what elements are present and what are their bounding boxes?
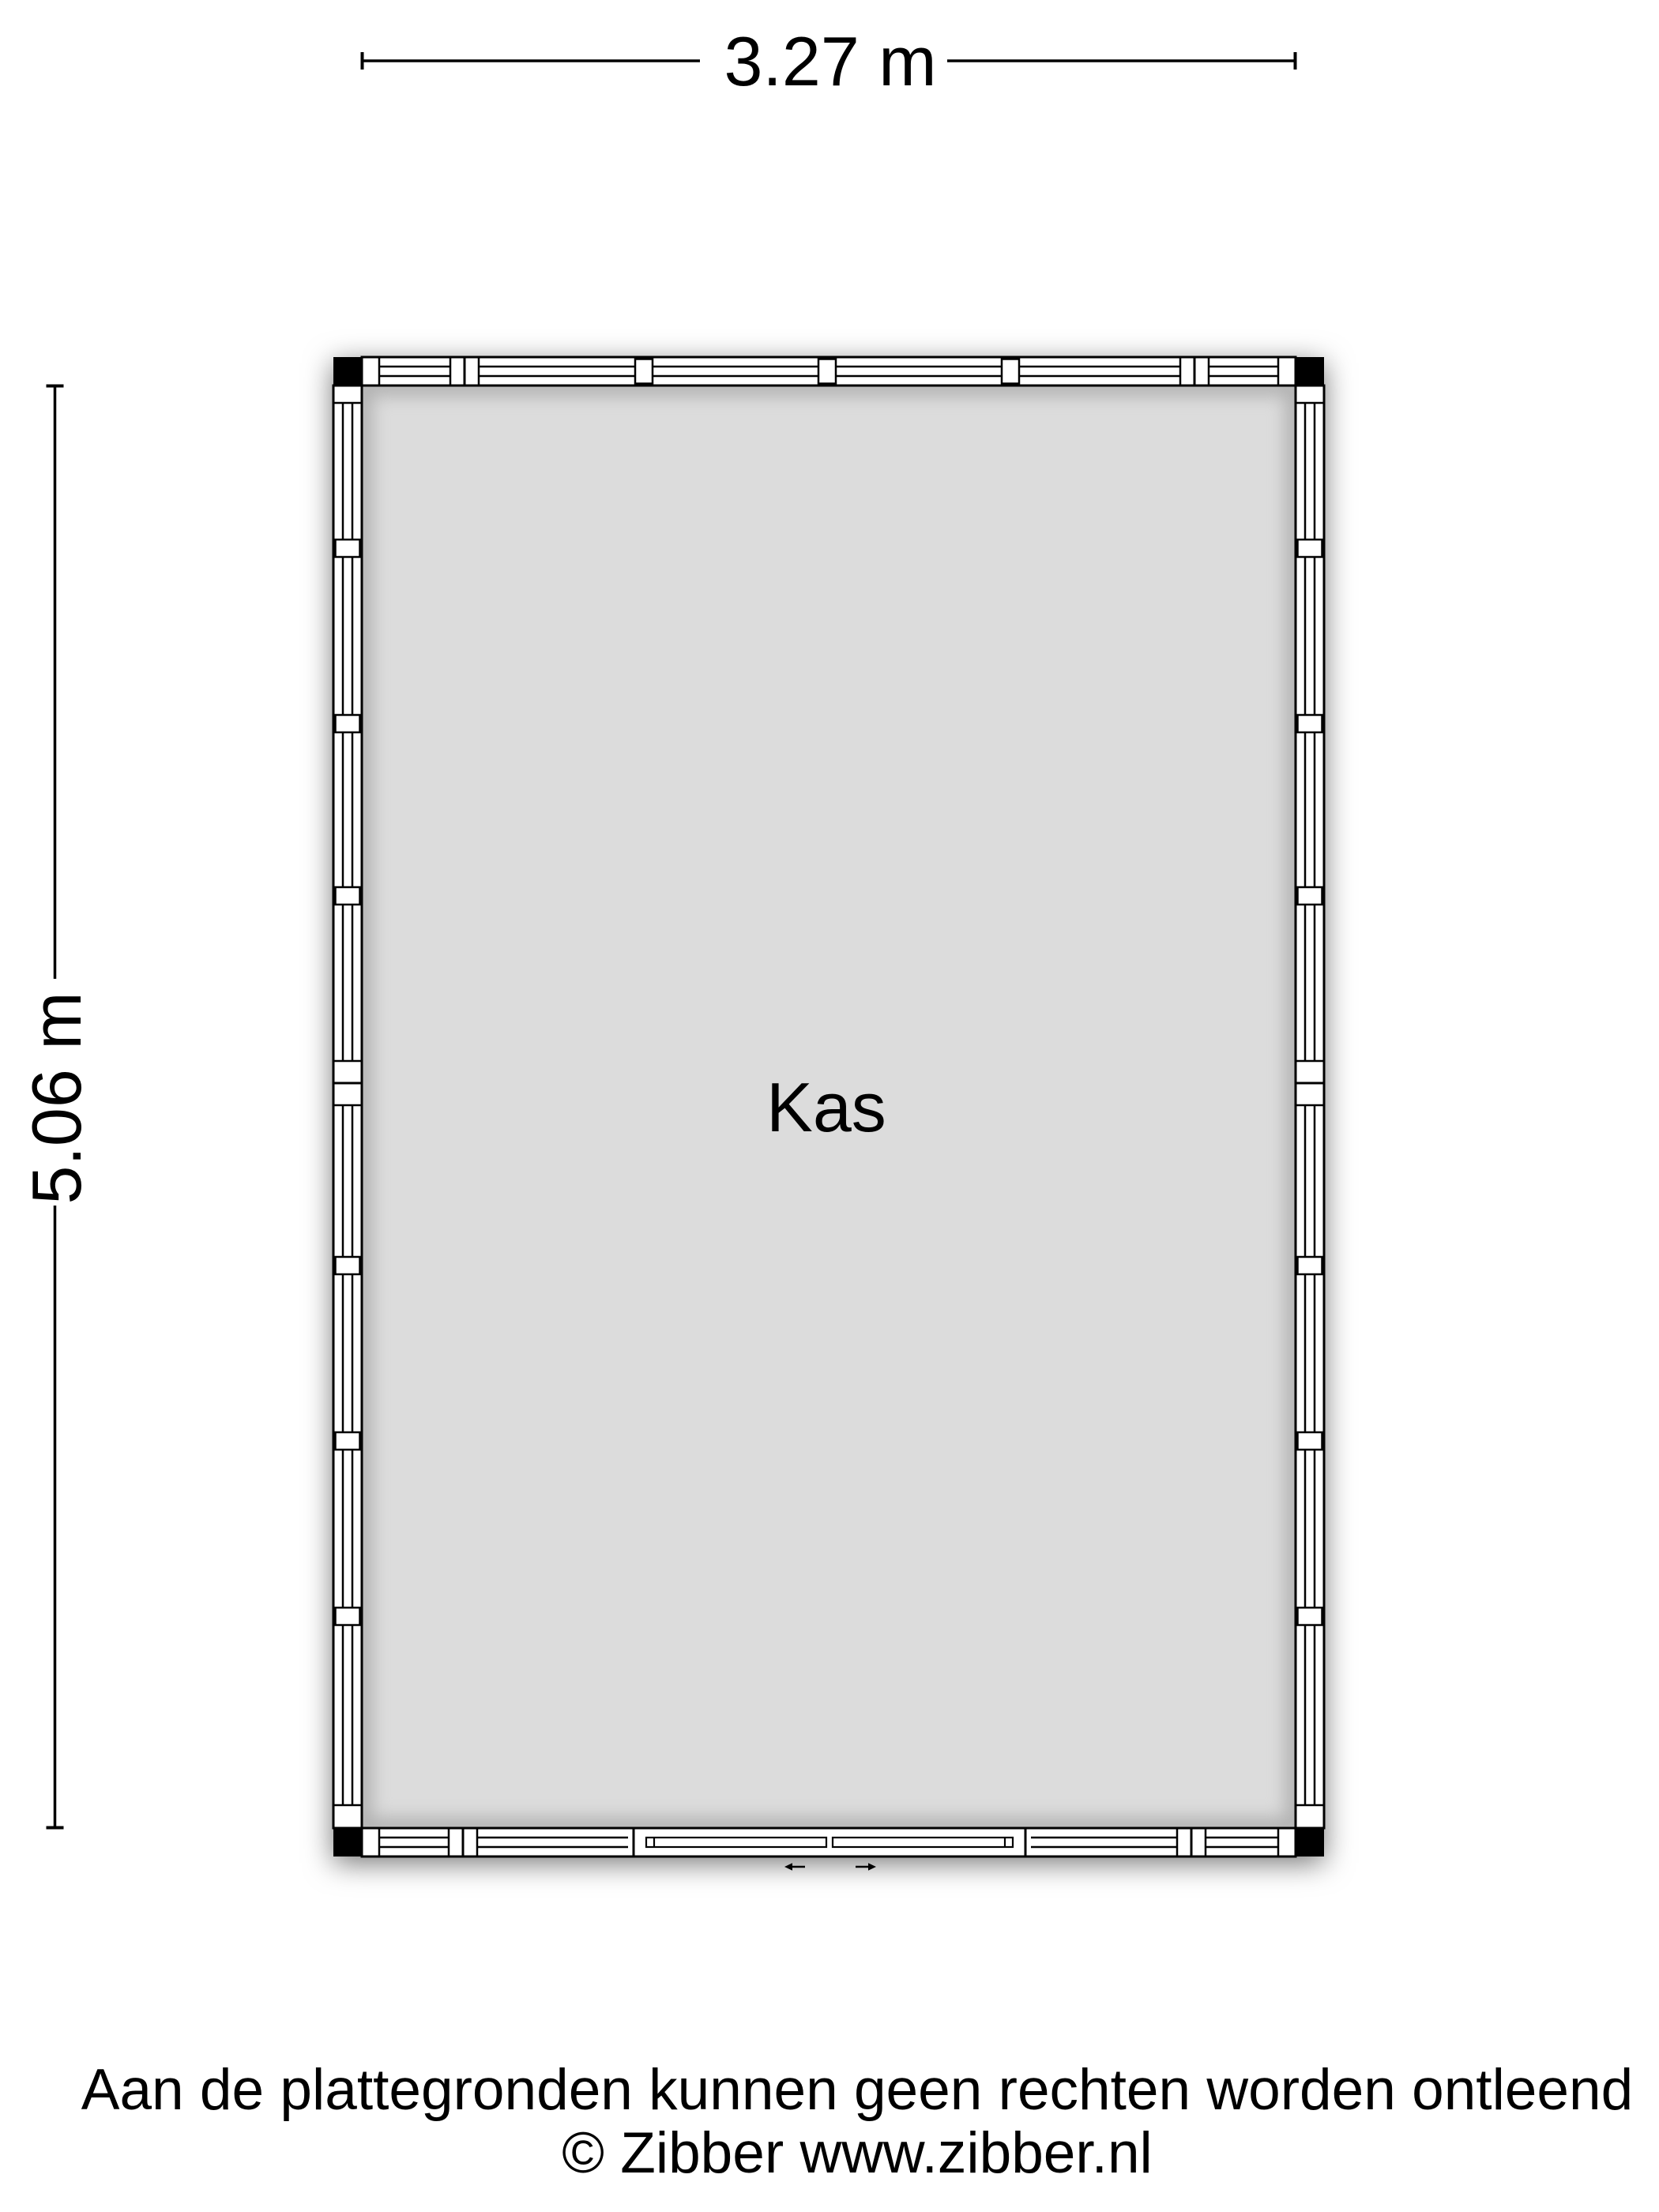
svg-text:3.27 m: 3.27 m bbox=[724, 22, 936, 100]
svg-text:Kas: Kas bbox=[766, 1068, 886, 1146]
svg-text:Aan de plattegronden kunnen ge: Aan de plattegronden kunnen geen rechten… bbox=[81, 2058, 1633, 2122]
svg-text:© Zibber www.zibber.nl: © Zibber www.zibber.nl bbox=[562, 2121, 1153, 2185]
svg-text:5.06 m: 5.06 m bbox=[17, 991, 96, 1204]
